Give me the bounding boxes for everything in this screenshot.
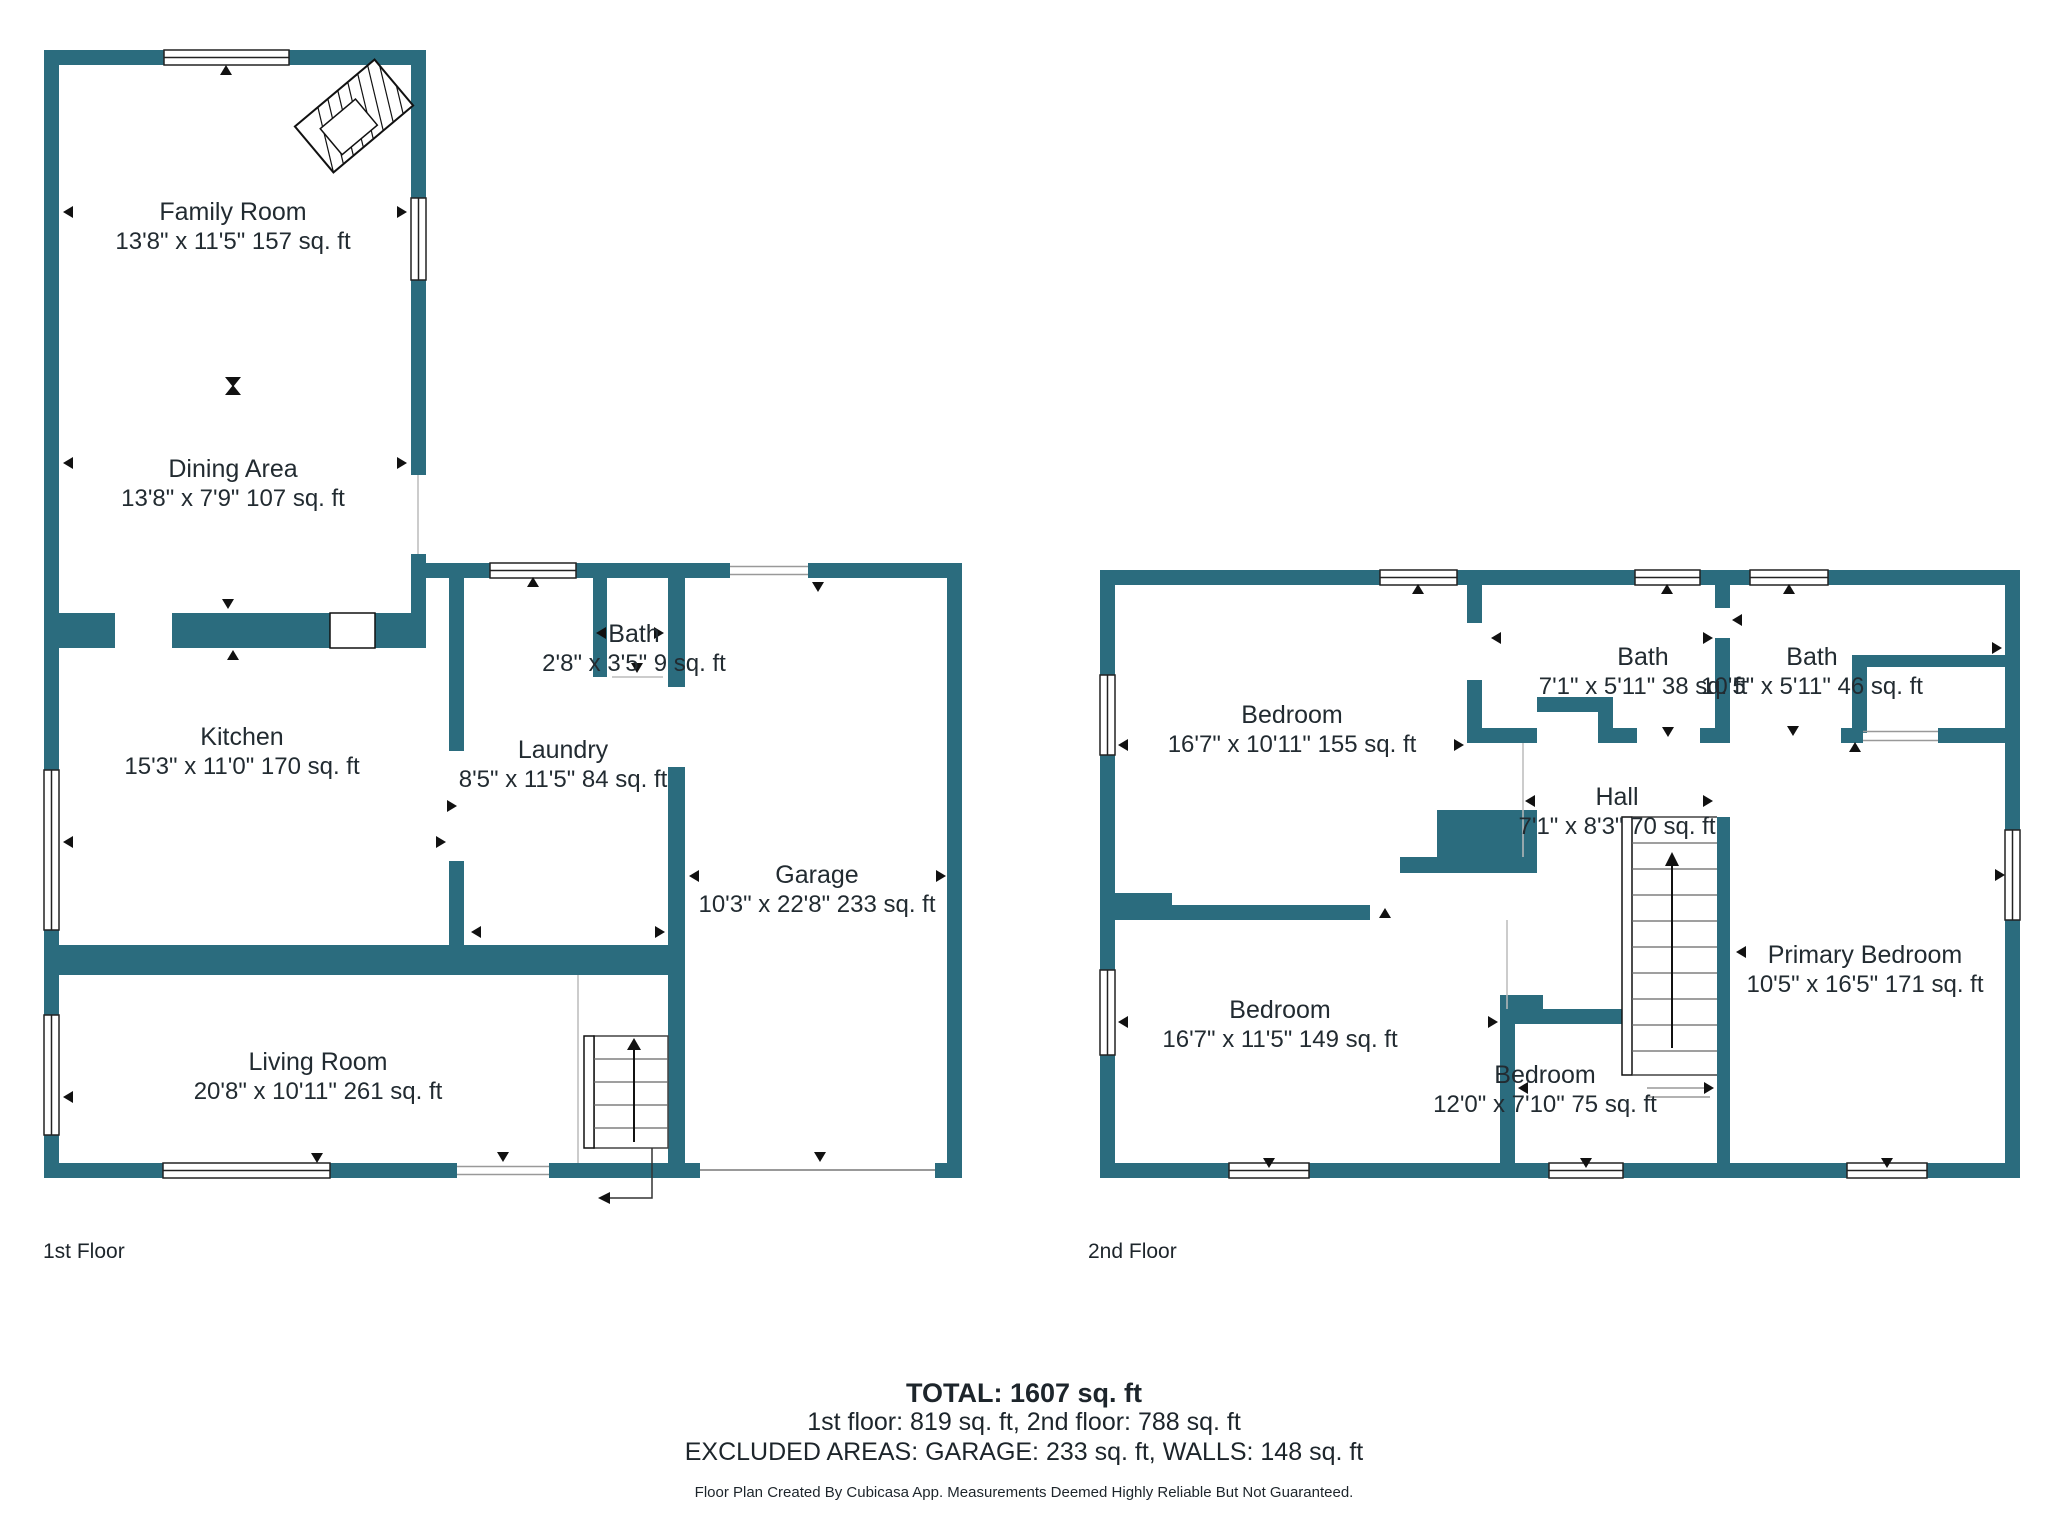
floor1-stairs <box>584 1036 668 1204</box>
primary-bedroom-dims: 10'5" x 16'5" 171 sq. ft <box>1746 970 1983 1000</box>
floor-plan-page: Family Room 13'8" x 11'5" 157 sq. ft Din… <box>0 0 2048 1536</box>
dining-area-dims: 13'8" x 7'9" 107 sq. ft <box>121 484 345 514</box>
bath-46-name: Bath <box>1701 642 1923 672</box>
living-room-dims: 20'8" x 10'11" 261 sq. ft <box>194 1077 443 1107</box>
summary-total: TOTAL: 1607 sq. ft <box>0 1377 2048 1409</box>
room-label-bath-floor1: Bath 2'8" x 3'5" 9 sq. ft <box>542 619 726 679</box>
bath-46-dims: 10'5" x 5'11" 46 sq. ft <box>1701 672 1923 702</box>
dining-door-leaf <box>330 613 375 648</box>
floor2-caption: 2nd Floor <box>1088 1240 1177 1264</box>
room-label-bedroom-2: Bedroom 16'7" x 11'5" 149 sq. ft <box>1162 995 1397 1055</box>
laundry-dims: 8'5" x 11'5" 84 sq. ft <box>459 765 668 795</box>
dining-area-name: Dining Area <box>121 454 345 484</box>
floor2-stairs <box>1622 817 1717 1075</box>
primary-bedroom-name: Primary Bedroom <box>1746 940 1983 970</box>
family-room-name: Family Room <box>115 197 350 227</box>
room-label-bath-46: Bath 10'5" x 5'11" 46 sq. ft <box>1701 642 1923 702</box>
kitchen-name: Kitchen <box>124 722 359 752</box>
room-label-kitchen: Kitchen 15'3" x 11'0" 170 sq. ft <box>124 722 359 782</box>
bath-floor1-name: Bath <box>542 619 726 649</box>
room-label-hall: Hall 7'1" x 8'3" 70 sq. ft <box>1519 782 1716 842</box>
living-room-name: Living Room <box>194 1047 443 1077</box>
summary-floors: 1st floor: 819 sq. ft, 2nd floor: 788 sq… <box>0 1407 2048 1437</box>
fireplace-icon <box>295 49 426 173</box>
hall-dims: 7'1" x 8'3" 70 sq. ft <box>1519 812 1716 842</box>
bedroom-2-name: Bedroom <box>1162 995 1397 1025</box>
room-label-bedroom-1: Bedroom 16'7" x 10'11" 155 sq. ft <box>1168 700 1417 760</box>
summary-disclaimer: Floor Plan Created By Cubicasa App. Meas… <box>0 1484 2048 1502</box>
garage-name: Garage <box>698 860 935 890</box>
bedroom-3-name: Bedroom <box>1433 1060 1657 1090</box>
room-label-garage: Garage 10'3" x 22'8" 233 sq. ft <box>698 860 935 920</box>
room-label-dining-area: Dining Area 13'8" x 7'9" 107 sq. ft <box>121 454 345 514</box>
room-label-family-room: Family Room 13'8" x 11'5" 157 sq. ft <box>115 197 350 257</box>
room-label-laundry: Laundry 8'5" x 11'5" 84 sq. ft <box>459 735 668 795</box>
bath-floor1-dims: 2'8" x 3'5" 9 sq. ft <box>542 649 726 679</box>
bedroom-2-dims: 16'7" x 11'5" 149 sq. ft <box>1162 1025 1397 1055</box>
hall-name: Hall <box>1519 782 1716 812</box>
bedroom-1-dims: 16'7" x 10'11" 155 sq. ft <box>1168 730 1417 760</box>
garage-dims: 10'3" x 22'8" 233 sq. ft <box>698 890 935 920</box>
summary-excluded-areas: EXCLUDED AREAS: GARAGE: 233 sq. ft, WALL… <box>0 1437 2048 1467</box>
room-label-living-room: Living Room 20'8" x 10'11" 261 sq. ft <box>194 1047 443 1107</box>
bedroom-3-dims: 12'0" x 7'10" 75 sq. ft <box>1433 1090 1657 1120</box>
floor1-caption: 1st Floor <box>43 1240 125 1264</box>
bedroom-1-name: Bedroom <box>1168 700 1417 730</box>
room-label-primary-bedroom: Primary Bedroom 10'5" x 16'5" 171 sq. ft <box>1746 940 1983 1000</box>
laundry-name: Laundry <box>459 735 668 765</box>
room-label-bedroom-3: Bedroom 12'0" x 7'10" 75 sq. ft <box>1433 1060 1657 1120</box>
kitchen-dims: 15'3" x 11'0" 170 sq. ft <box>124 752 359 782</box>
room-divider-marker <box>225 377 241 395</box>
family-room-dims: 13'8" x 11'5" 157 sq. ft <box>115 227 350 257</box>
